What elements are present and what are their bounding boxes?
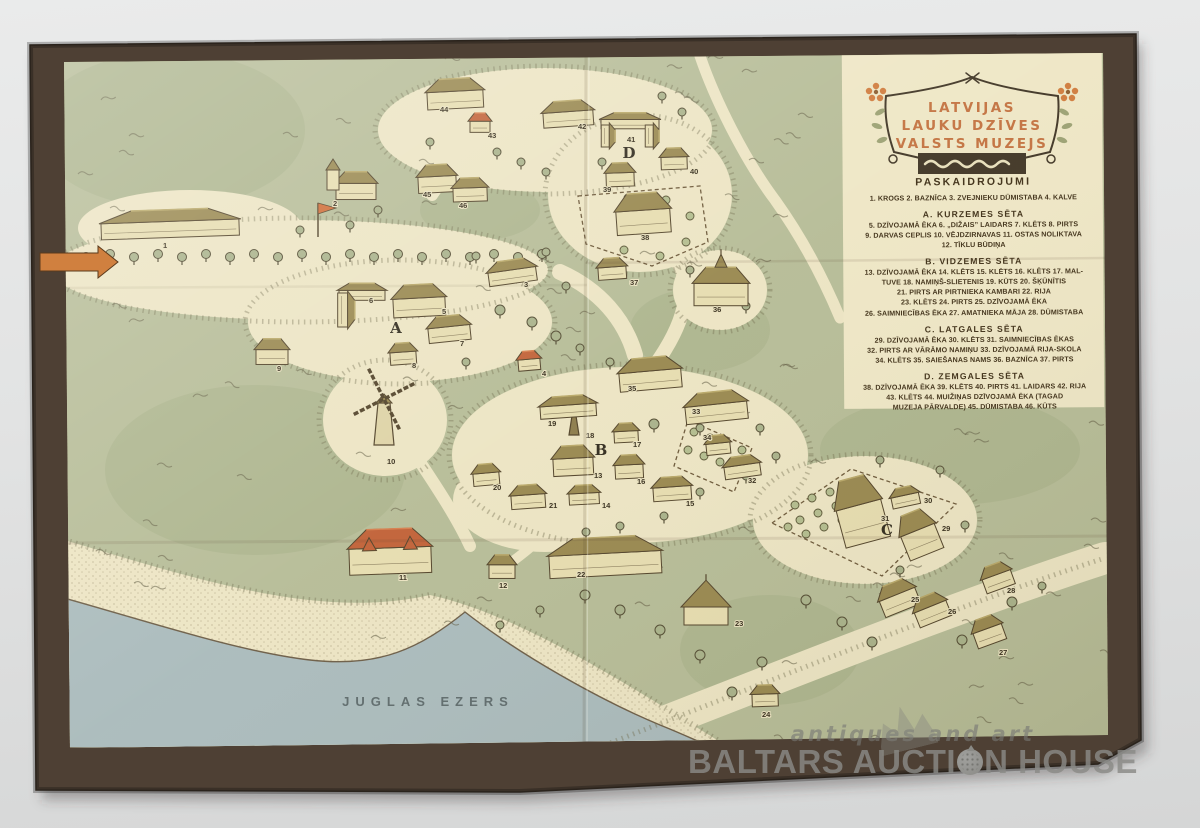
legend-line: 12. TĪKLU BŪDIŅA <box>845 239 1103 251</box>
legend-line: 26. SAIMNIECĪBAS ĒKA 27. AMATNIEKA MĀJA … <box>845 307 1103 319</box>
legend-section-heading: D. ZEMGALES SĒTA <box>846 370 1104 382</box>
legend-line: 38. DZĪVOJAMĀ ĒKA 39. KLĒTS 40. PIRTS 41… <box>846 381 1104 393</box>
legend-section-heading: C. LATGALES SĒTA <box>845 323 1103 335</box>
legend-sections: 1. KROGS 2. BAZNĪCA 3. ZVEJNIEKU DŪMISTA… <box>844 192 1104 413</box>
legend-section-heading: B. VIDZEMES SĒTA <box>845 255 1103 267</box>
legend-line: 1. KROGS 2. BAZNĪCA 3. ZVEJNIEKU DŪMISTA… <box>844 192 1102 204</box>
legend-section-heading: A. KURZEMES SĒTA <box>844 208 1102 220</box>
map-photo: JUGLAS EZERS 123456789 <box>0 0 1200 828</box>
photo-background: JUGLAS EZERS 123456789 <box>0 0 1200 828</box>
legend-line: MUZEJA PĀRVALDE) 45. DŪMISTABA 46. KŪTS <box>846 401 1104 413</box>
legend-heading: PASKAIDROJUMI <box>844 175 1102 189</box>
legend-line: 34. KLĒTS 35. SAIEŠANAS NAMS 36. BAZNĪCA… <box>845 354 1103 366</box>
legend: PASKAIDROJUMI 1. KROGS 2. BAZNĪCA 3. ZVE… <box>844 175 1104 413</box>
